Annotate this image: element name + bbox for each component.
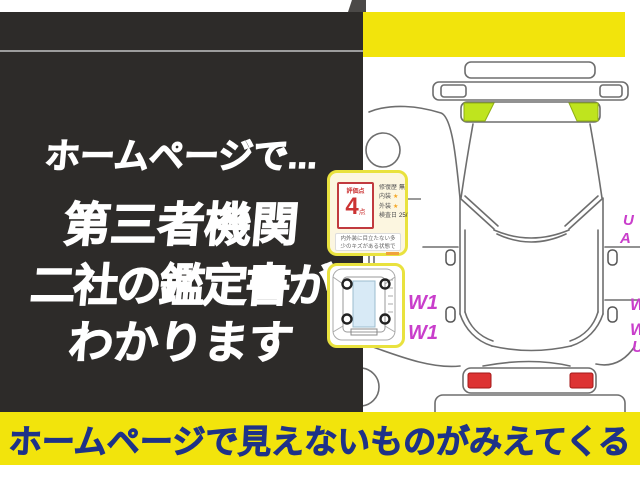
- spec-row-inspection-date: 検査日 25/: [379, 212, 409, 221]
- banner-text: ホームページで見えないものがみえてくる: [8, 415, 633, 463]
- condition-code-u-bottom: U: [632, 340, 640, 356]
- rating-certificate-card: 評価点 4点 修復歴 無 内装 ★ 外装 ★ 検査日 25/ 内外装に目立たない…: [327, 170, 408, 256]
- panel-seam-line: [0, 50, 363, 52]
- headline-line-3: 二社の鑑定書が: [0, 249, 366, 314]
- condition-code-a: A: [620, 231, 631, 246]
- condition-code-w1-lower: W1: [408, 323, 438, 343]
- condition-code-w-upper: W: [630, 296, 640, 313]
- headline-line-1: ホームページで...: [0, 128, 365, 179]
- condition-code-w1-upper: W1: [408, 293, 438, 313]
- rear-wheel-circle: [363, 368, 379, 406]
- card-orange-tab: [386, 252, 399, 255]
- diagram-header-band: [363, 12, 625, 57]
- condition-note: 内外装に目立たない多少のキズがある状態です。: [335, 233, 401, 251]
- score-unit: 点: [359, 209, 366, 216]
- left-headlight-shape: [441, 85, 466, 97]
- condition-code-u-top: U: [623, 213, 634, 228]
- condition-code-w-lower: W: [630, 321, 640, 338]
- spec-rows: 修復歴 無 内装 ★ 外装 ★ 検査日 25/: [379, 184, 409, 221]
- rear-bumper-shape: [435, 395, 625, 412]
- left-a-pillar-line: [461, 124, 473, 198]
- score-box: 評価点 4点: [337, 182, 374, 229]
- right-headlight-shape: [600, 85, 622, 97]
- front-wheel-circle: [366, 133, 400, 167]
- front-bumper-shape: [465, 62, 595, 78]
- headline-line-4: わかります: [0, 306, 366, 371]
- headline-panel: ホームページで... 第三者機関 二社の鑑定書が わかります: [0, 12, 363, 412]
- photo-edge-fragment: [348, 0, 366, 12]
- right-a-pillar-line: [590, 124, 602, 198]
- interior-diagram-card: [327, 263, 405, 348]
- bottom-banner: ホームページで見えないものがみえてくる: [0, 412, 640, 465]
- interior-mini-diagram: [330, 266, 402, 345]
- door-handles: [446, 250, 617, 322]
- headline-line-2: 第三者機関: [0, 186, 366, 255]
- spec-row-interior: 内装 ★: [379, 193, 409, 202]
- left-tail-light: [468, 373, 491, 388]
- score-value: 4: [345, 193, 358, 220]
- spec-row-exterior: 外装 ★: [379, 203, 409, 212]
- spec-row-repair: 修復歴 無: [379, 184, 409, 193]
- right-tail-light: [570, 373, 593, 388]
